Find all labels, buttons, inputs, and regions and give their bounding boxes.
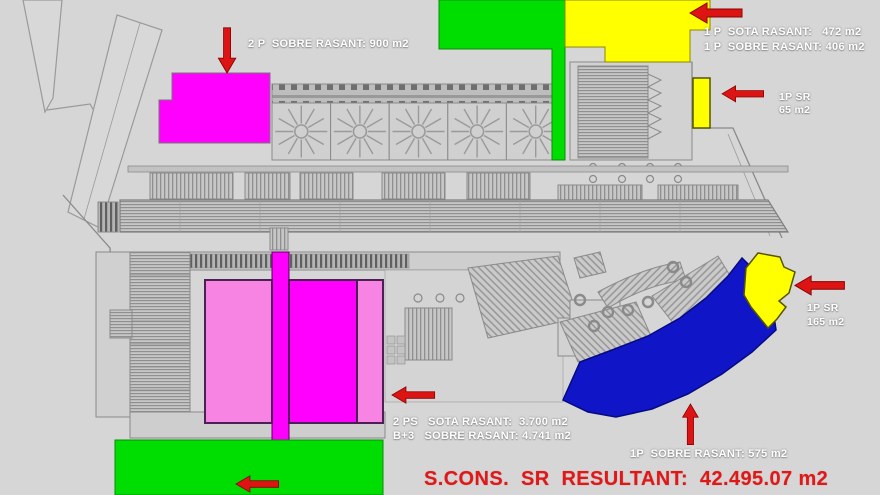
center-bottom-structures bbox=[385, 256, 578, 402]
label-bottom-center-line1: 2 PS SOTA RASANT: 3.700 m2 bbox=[393, 415, 568, 429]
sunburst-roof-modules bbox=[272, 103, 565, 160]
label-total-result: S.CONS. SR RESULTANT: 42.495.07 m2 bbox=[424, 468, 828, 491]
zone-pink-right bbox=[357, 280, 383, 423]
zone-yellow-small bbox=[693, 78, 710, 128]
label-bottom-right-zone: 1P SOBRE RASANT: 575 m2 bbox=[630, 447, 787, 461]
label-right-lower-line2: 165 m2 bbox=[807, 315, 844, 329]
canopy-beam bbox=[128, 166, 788, 172]
zone-magenta-strip bbox=[272, 252, 289, 440]
roof-window-strip bbox=[272, 84, 565, 103]
label-right-upper-line1: 1P SR bbox=[779, 90, 811, 104]
zone-magenta-center bbox=[289, 280, 357, 423]
zone-pink-left bbox=[205, 280, 272, 423]
label-right-lower-line1: 1P SR bbox=[807, 301, 839, 315]
label-top-right-line2: 1 P SOBRE RASANT: 406 m2 bbox=[704, 40, 865, 54]
label-right-upper-line2: 65 m2 bbox=[779, 103, 810, 117]
label-top-left-zone: 2 P SOBRE RASANT: 900 m2 bbox=[248, 37, 409, 51]
zone-magenta-top-left bbox=[159, 73, 270, 143]
label-top-right-line1: 1 P SOTA RASANT: 472 m2 bbox=[704, 25, 861, 39]
label-bottom-center-line2: B+3 SOBRE RASANT: 4.741 m2 bbox=[393, 429, 571, 443]
site-plan-screenshot: 2 P SOBRE RASANT: 900 m2 1 P SOTA RASANT… bbox=[0, 0, 880, 495]
